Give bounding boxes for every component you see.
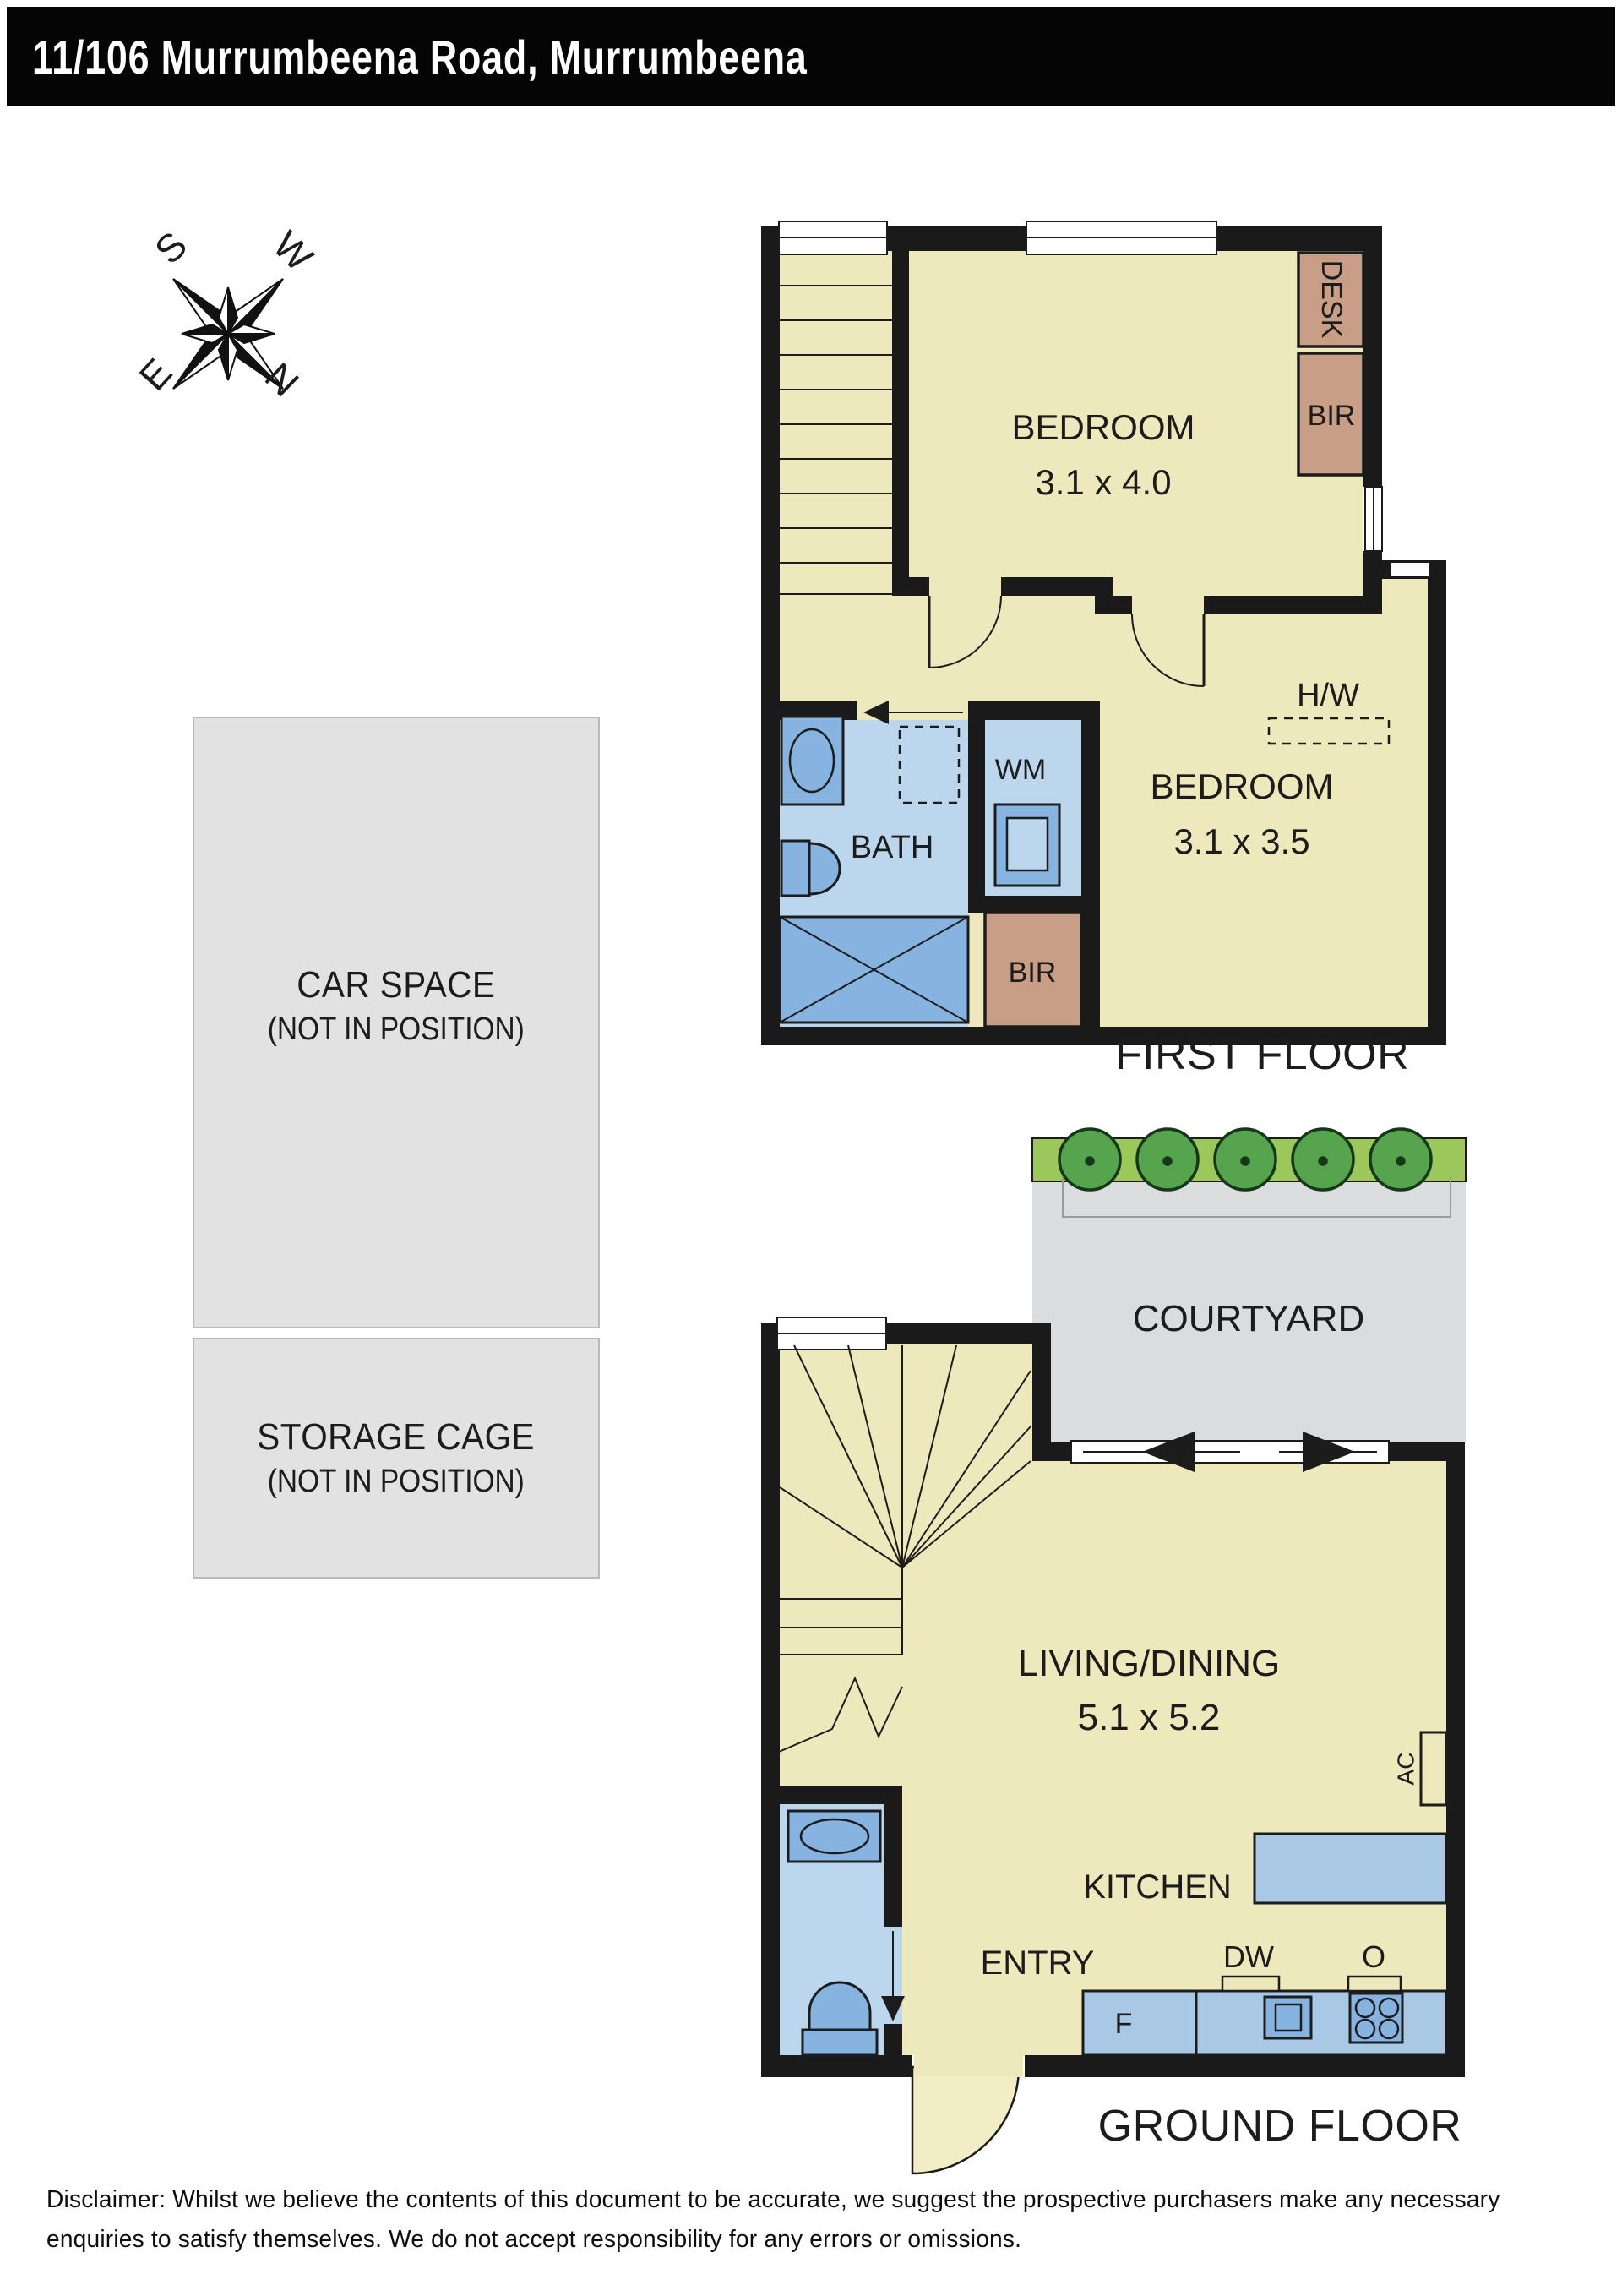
bedroom2-label: BEDROOM <box>1150 766 1333 806</box>
dishwasher-notch <box>1222 1977 1279 1991</box>
kitchen-island <box>1255 1834 1446 1903</box>
powder-vanity-icon <box>788 1811 880 1862</box>
compass-west-label: W <box>264 222 322 280</box>
car-space-title: CAR SPACE <box>297 964 495 1006</box>
hw-label: H/W <box>1297 678 1359 713</box>
ac-label: AC <box>1393 1753 1419 1786</box>
disclaimer-text: Disclaimer: Whilst we believe the conten… <box>46 2180 1554 2260</box>
car-space-box: CAR SPACE (NOT IN POSITION) <box>193 717 600 1328</box>
first-floor-caption: FIRST FLOOR <box>1000 1029 1524 1080</box>
bir-lower-label: BIR <box>1009 957 1057 989</box>
first-floor-plan: BEDROOM 3.1 x 4.0 DESK BIR H/W BEDROOM 3… <box>761 221 1446 1045</box>
storage-cage-title: STORAGE CAGE <box>258 1416 536 1459</box>
entry-opening <box>914 2055 1023 2077</box>
window <box>1391 562 1429 577</box>
storage-cage-box: STORAGE CAGE (NOT IN POSITION) <box>193 1338 600 1579</box>
oven-notch <box>1348 1977 1401 1991</box>
bedroom1-label: BEDROOM <box>1011 407 1195 447</box>
ground-floor-caption: GROUND FLOOR <box>1018 2101 1542 2151</box>
oven-label: O <box>1362 1939 1385 1974</box>
entry-label: ENTRY <box>981 1944 1095 1982</box>
vanity-icon <box>781 717 843 804</box>
fridge-label: F <box>1115 2008 1133 2040</box>
living-label: LIVING/DINING <box>1018 1643 1281 1684</box>
toilet-icon <box>781 841 840 896</box>
compass-east-label: E <box>130 350 180 399</box>
storage-cage-note: (NOT IN POSITION) <box>268 1464 525 1500</box>
dishwasher-label: DW <box>1223 1939 1274 1974</box>
desk-label: DESK <box>1315 260 1347 339</box>
car-space-note: (NOT IN POSITION) <box>268 1012 525 1048</box>
compass-south-label: S <box>146 223 195 272</box>
dishwasher-icon <box>1265 1997 1311 2038</box>
ac-unit <box>1421 1732 1446 1805</box>
ground-floor-plan: COURTYARD LIVING/DINING 5.1 x 5.2 KITCHE… <box>761 1129 1466 2173</box>
bedroom2-dims: 3.1 x 3.5 <box>1173 821 1309 861</box>
bedroom1-dims: 3.1 x 4.0 <box>1035 462 1171 502</box>
courtyard-label: COURTYARD <box>1133 1298 1365 1339</box>
bir-top-label: BIR <box>1308 400 1356 432</box>
wm-label: WM <box>995 754 1046 786</box>
compass-icon: S W E N <box>130 222 322 405</box>
washing-machine-icon <box>995 804 1059 886</box>
cooktop-icon <box>1350 1993 1402 2042</box>
entry-door-swing <box>912 2067 1019 2173</box>
shower-icon <box>780 917 968 1023</box>
bath-label: BATH <box>851 830 934 865</box>
floorplan-page: 11/106 Murrumbeena Road, Murrumbeena S W… <box>0 0 1622 2296</box>
kitchen-label: KITCHEN <box>1083 1868 1232 1906</box>
living-dims: 5.1 x 5.2 <box>1078 1697 1221 1738</box>
